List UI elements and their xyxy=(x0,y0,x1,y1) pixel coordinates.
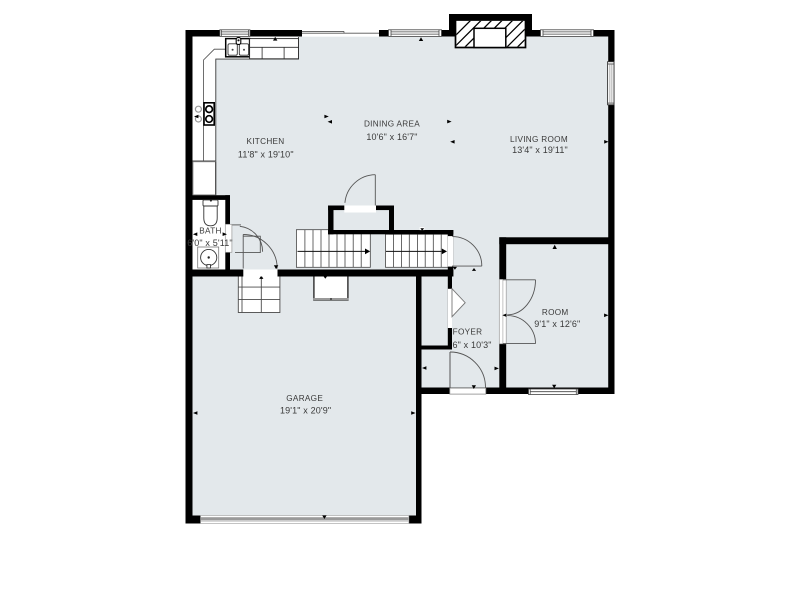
svg-text:19'1" x 20'9": 19'1" x 20'9" xyxy=(280,405,331,415)
svg-text:KITCHEN: KITCHEN xyxy=(246,137,284,146)
svg-text:9'1" x 12'6": 9'1" x 12'6" xyxy=(534,319,580,329)
svg-text:BATH: BATH xyxy=(199,227,221,236)
svg-text:LIVING ROOM: LIVING ROOM xyxy=(510,135,568,144)
svg-text:DINING AREA: DINING AREA xyxy=(364,120,420,129)
svg-text:FOYER: FOYER xyxy=(453,328,483,337)
svg-text:GARAGE: GARAGE xyxy=(286,394,323,403)
svg-text:6" x 10'3": 6" x 10'3" xyxy=(453,340,492,350)
svg-text:10'6" x 16'7": 10'6" x 16'7" xyxy=(366,132,417,142)
svg-text:11'8" x 19'10": 11'8" x 19'10" xyxy=(238,149,294,159)
svg-text:ROOM: ROOM xyxy=(542,308,569,317)
svg-text:6'0" x 5'11": 6'0" x 5'11" xyxy=(187,238,233,248)
svg-text:13'4" x 19'11": 13'4" x 19'11" xyxy=(512,145,568,155)
